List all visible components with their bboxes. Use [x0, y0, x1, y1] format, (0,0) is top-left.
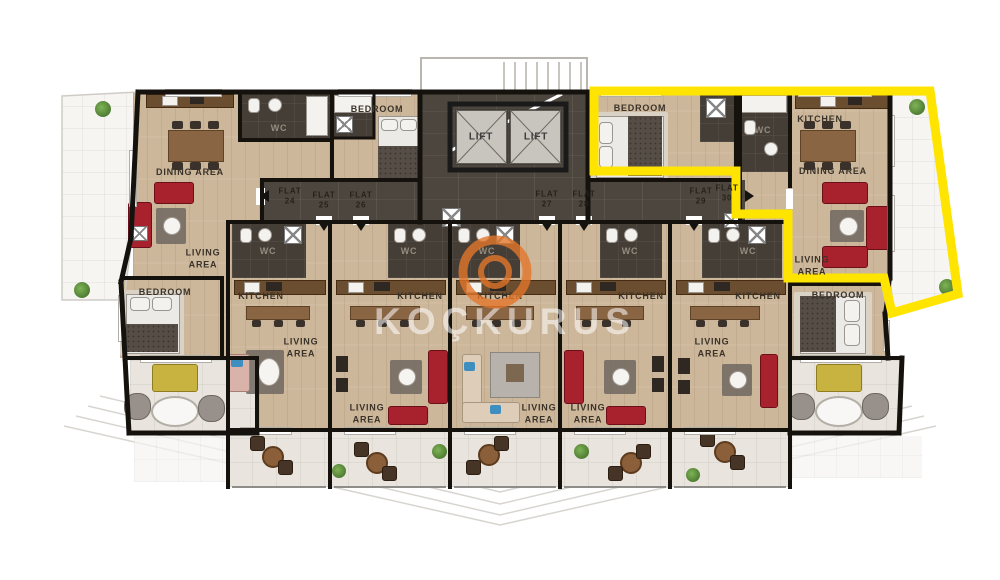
label-living-area-flat24: LIVING AREA: [186, 247, 221, 270]
flat-tag-25: FLAT 25: [312, 191, 335, 212]
label-dining-area-flat24: DINING AREA: [156, 167, 224, 179]
label-bedroom-flat24: BEDROOM: [139, 287, 192, 299]
flat-tag-27: FLAT 27: [535, 190, 558, 211]
label-kitchen-5: KITCHEN: [735, 291, 781, 303]
label-bedroom-flat29: BEDROOM: [812, 290, 865, 302]
label-wc-2: WC: [401, 246, 418, 258]
label-living-4: LIVING AREA: [571, 402, 606, 425]
label-living-1: LIVING AREA: [284, 336, 319, 359]
label-living-area-flat30: LIVING AREA: [795, 254, 830, 277]
flat-tag-24: FLAT 24: [278, 187, 301, 208]
label-lift-2: LIFT: [524, 131, 548, 144]
label-wc-3: WC: [479, 246, 496, 258]
flat-tag-30: FLAT 30: [715, 184, 738, 205]
label-wc-flat24: WC: [271, 123, 288, 135]
flat-tag-28: FLAT 28: [572, 190, 595, 211]
label-living-5: LIVING AREA: [695, 336, 730, 359]
label-living-2: LIVING AREA: [350, 402, 385, 425]
labels-layer: DINING AREAWCBEDROOMLIFTLIFTBEDROOMWCKIT…: [0, 0, 1000, 580]
label-kitchen-2: KITCHEN: [397, 291, 443, 303]
label-wc-4: WC: [622, 246, 639, 258]
label-living-3: LIVING AREA: [522, 402, 557, 425]
label-kitchen-1: KITCHEN: [238, 291, 284, 303]
label-lift-1: LIFT: [469, 131, 493, 144]
label-dining-area-flat30: DINING AREA: [799, 166, 867, 178]
floor-plan-canvas: DINING AREAWCBEDROOMLIFTLIFTBEDROOMWCKIT…: [0, 0, 1000, 580]
label-wc-5: WC: [740, 246, 757, 258]
label-kitchen-3: KITCHEN: [477, 291, 523, 303]
label-kitchen-flat30: KITCHEN: [797, 114, 843, 126]
flat-tag-29: FLAT 29: [689, 187, 712, 208]
label-bedroom-flat25: BEDROOM: [351, 104, 404, 116]
label-wc-flat30: WC: [755, 125, 772, 137]
label-bedroom-flat30: BEDROOM: [614, 103, 667, 115]
flat-tag-26: FLAT 26: [349, 191, 372, 212]
label-wc-1: WC: [260, 246, 277, 258]
label-kitchen-4: KITCHEN: [618, 291, 664, 303]
